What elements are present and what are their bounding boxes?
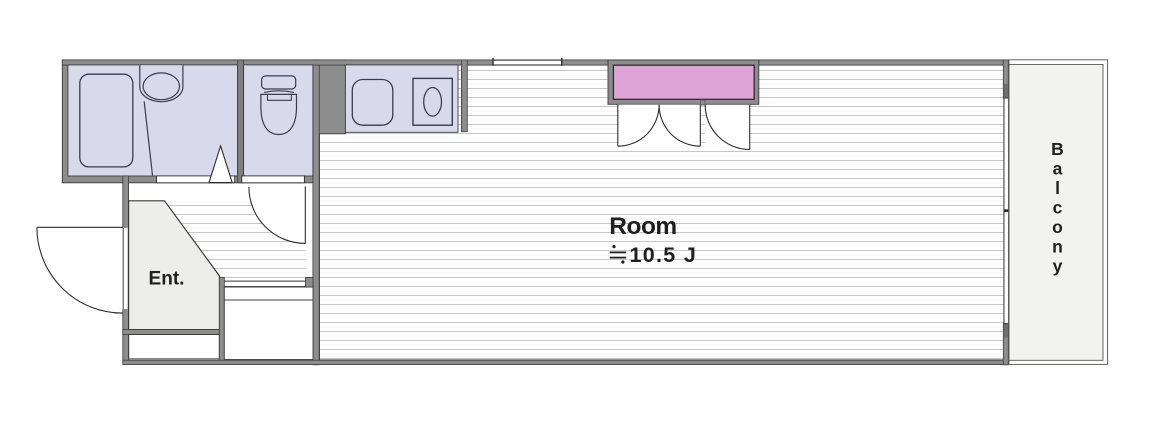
svg-text:a: a: [1053, 158, 1063, 178]
svg-text:n: n: [1052, 236, 1063, 256]
svg-text:c: c: [1053, 197, 1063, 217]
svg-text:Ent.: Ent.: [149, 269, 185, 290]
svg-text:y: y: [1053, 256, 1063, 276]
svg-text:o: o: [1052, 217, 1063, 237]
svg-text:10.5 J: 10.5 J: [630, 243, 698, 267]
svg-text:Room: Room: [609, 213, 676, 240]
svg-text:B: B: [1051, 139, 1064, 159]
svg-text:l: l: [1055, 178, 1060, 198]
